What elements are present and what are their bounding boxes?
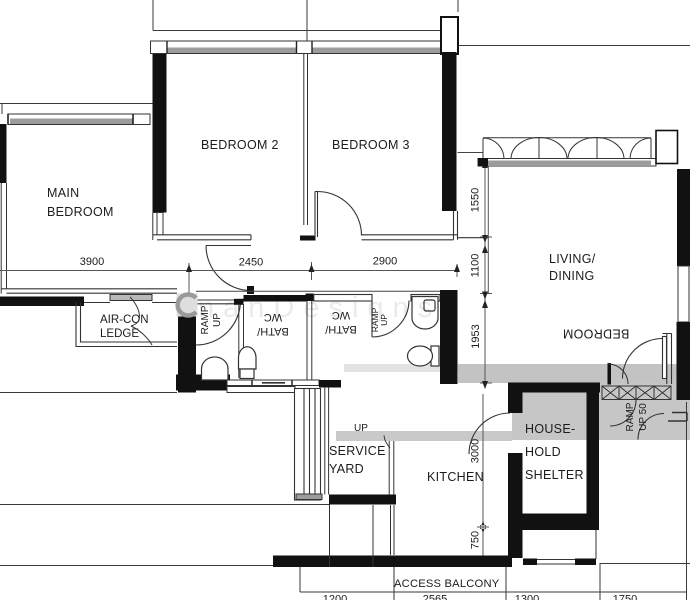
svg-text:1100: 1100 bbox=[470, 254, 482, 278]
svg-text:1300: 1300 bbox=[515, 594, 539, 600]
svg-text:BEDROOM: BEDROOM bbox=[563, 327, 630, 341]
svg-text:YARD: YARD bbox=[329, 462, 364, 476]
svg-text:1200: 1200 bbox=[323, 594, 347, 600]
svg-text:SERVICE: SERVICE bbox=[329, 444, 386, 458]
svg-text:750: 750 bbox=[470, 531, 482, 549]
svg-text:HOLD: HOLD bbox=[525, 445, 561, 459]
svg-text:SHELTER: SHELTER bbox=[525, 468, 584, 482]
svg-text:BATH/: BATH/ bbox=[256, 325, 289, 337]
svg-text:MAIN: MAIN bbox=[47, 186, 79, 200]
svg-text:1750: 1750 bbox=[613, 594, 637, 600]
svg-text:RAMP: RAMP bbox=[625, 402, 636, 431]
svg-text:BEDROOM: BEDROOM bbox=[47, 205, 114, 219]
svg-text:DINING: DINING bbox=[549, 269, 595, 283]
svg-text:KITCHEN: KITCHEN bbox=[427, 470, 484, 484]
svg-text:BEDROOM 2: BEDROOM 2 bbox=[201, 138, 279, 152]
svg-text:2565: 2565 bbox=[423, 594, 447, 600]
svg-text:1953: 1953 bbox=[470, 324, 482, 348]
svg-text:BEDROOM 3: BEDROOM 3 bbox=[332, 138, 410, 152]
svg-text:1550: 1550 bbox=[470, 188, 482, 212]
svg-text:UP: UP bbox=[354, 423, 368, 434]
svg-text:2450: 2450 bbox=[239, 257, 263, 269]
svg-text:LEDGE: LEDGE bbox=[100, 328, 139, 340]
svg-text:AIR-CON: AIR-CON bbox=[100, 314, 149, 326]
svg-text:nanDesigns: nanDesigns bbox=[198, 292, 441, 324]
svg-text:LIVING/: LIVING/ bbox=[549, 252, 596, 266]
svg-text:BATH/: BATH/ bbox=[324, 323, 357, 335]
svg-text:3900: 3900 bbox=[80, 256, 104, 268]
svg-text:UP 50: UP 50 bbox=[638, 403, 649, 431]
svg-text:ACCESS BALCONY: ACCESS BALCONY bbox=[394, 578, 500, 590]
svg-text:2900: 2900 bbox=[373, 256, 397, 268]
svg-text:HOUSE-: HOUSE- bbox=[525, 422, 575, 436]
svg-text:3000: 3000 bbox=[470, 439, 482, 463]
